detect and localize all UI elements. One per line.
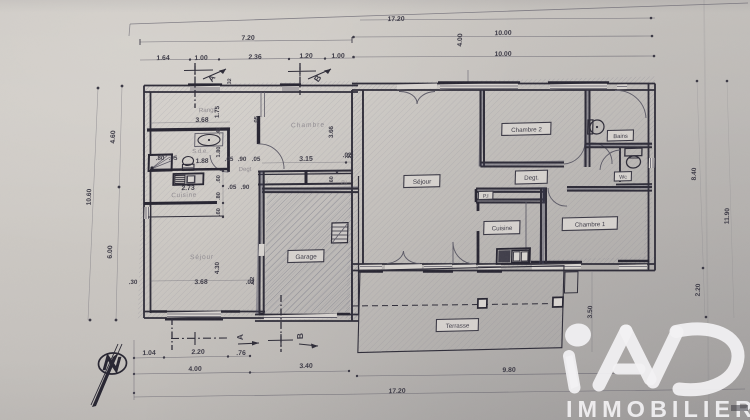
svg-text:IMMOBILIER: IMMOBILIER — [566, 396, 750, 420]
